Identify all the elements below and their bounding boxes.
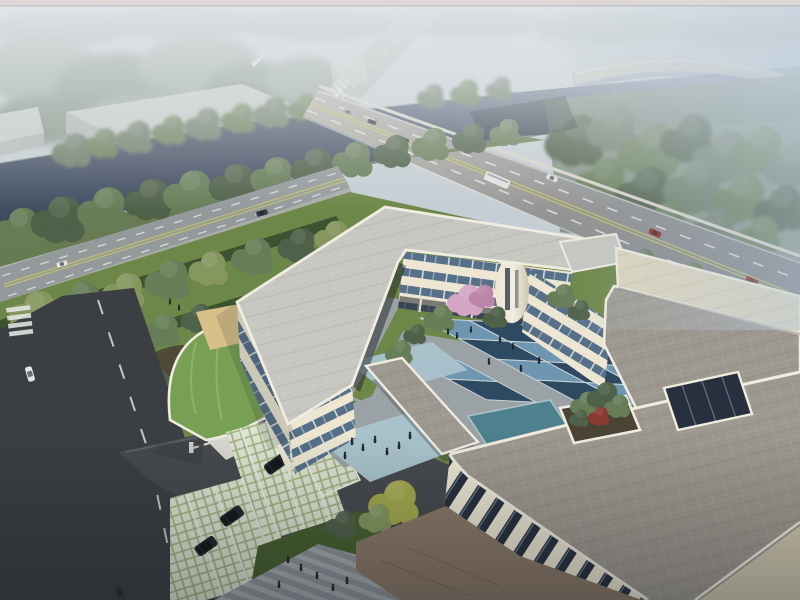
vignette-bottom xyxy=(0,430,800,600)
haze-right xyxy=(552,0,800,330)
rendering-viewport xyxy=(0,0,800,600)
aerial-rendering xyxy=(0,0,800,600)
frame-edge-top xyxy=(0,0,800,5)
frame-edge-line xyxy=(0,5,800,7)
